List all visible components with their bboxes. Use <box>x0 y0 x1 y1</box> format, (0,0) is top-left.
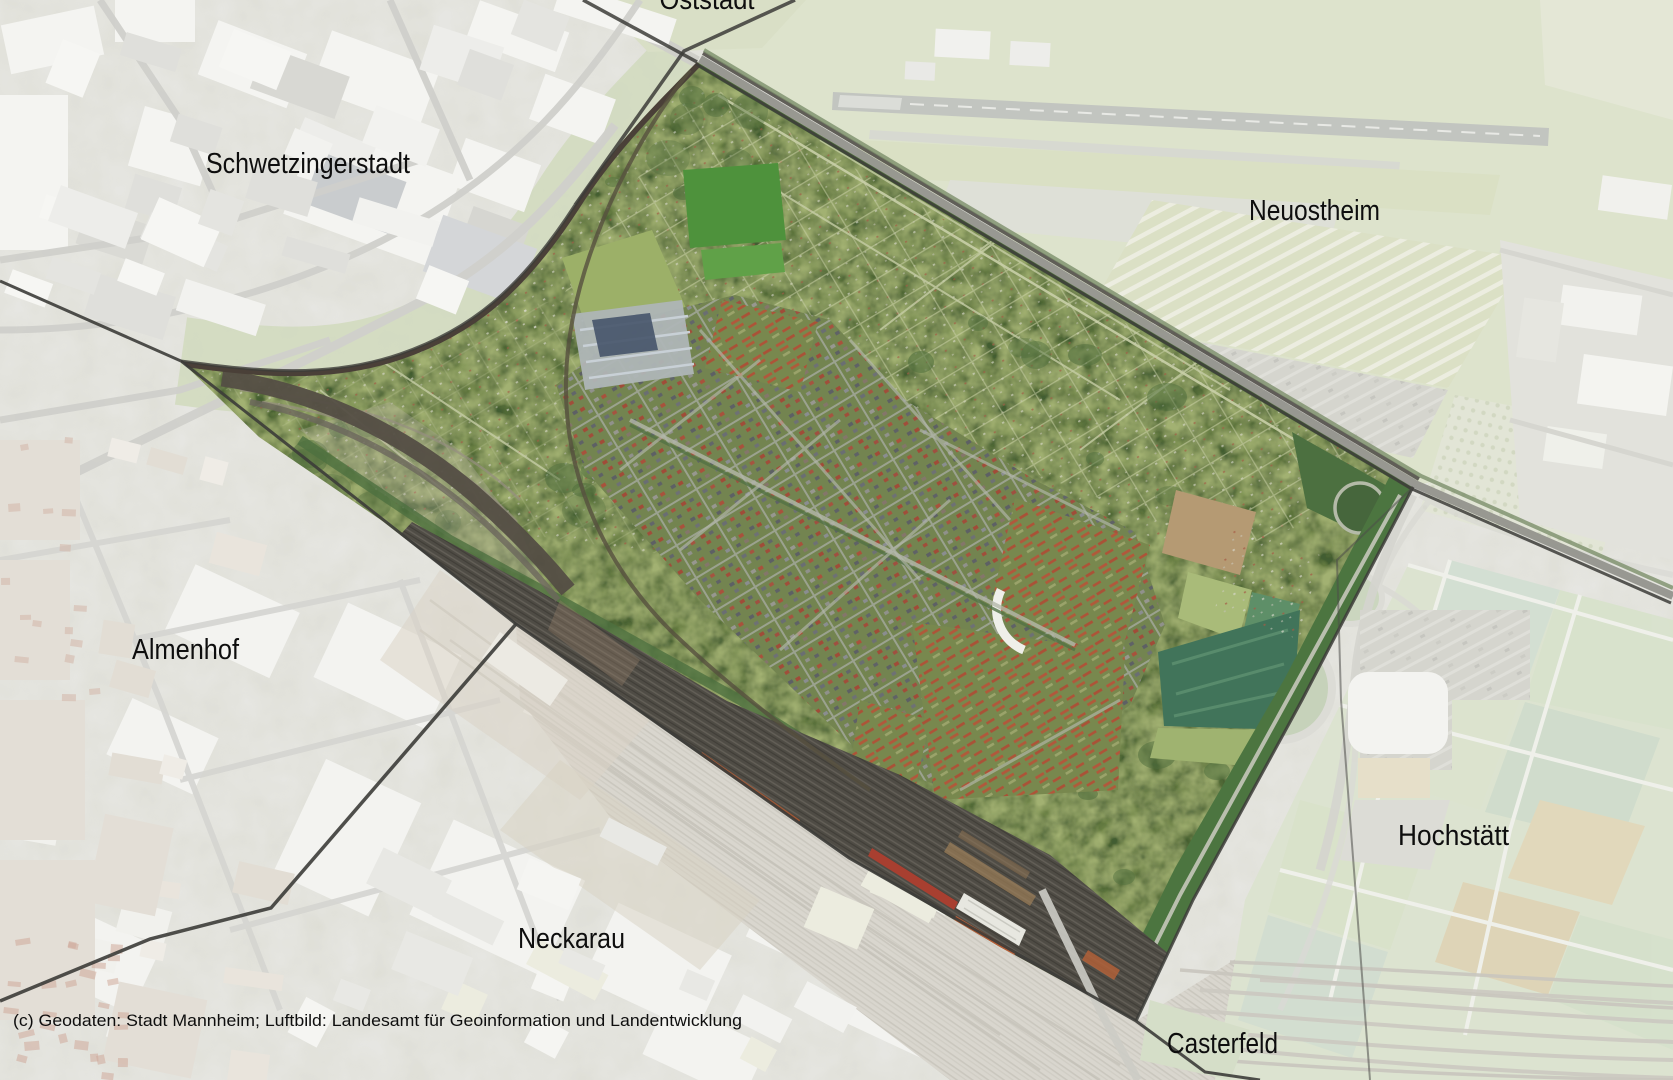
svg-text:Hochstätt: Hochstätt <box>1398 820 1509 852</box>
svg-text:(c) Geodaten: Stadt Mannheim;: (c) Geodaten: Stadt Mannheim; Luftbild: … <box>13 1012 742 1030</box>
svg-text:Neckarau: Neckarau <box>518 923 625 955</box>
svg-text:Casterfeld: Casterfeld <box>1167 1028 1278 1060</box>
svg-text:Schwetzingerstadt: Schwetzingerstadt <box>206 148 410 180</box>
svg-text:Oststadt: Oststadt <box>660 0 755 16</box>
svg-text:Almenhof: Almenhof <box>132 634 240 666</box>
svg-text:Neuostheim: Neuostheim <box>1249 195 1380 227</box>
